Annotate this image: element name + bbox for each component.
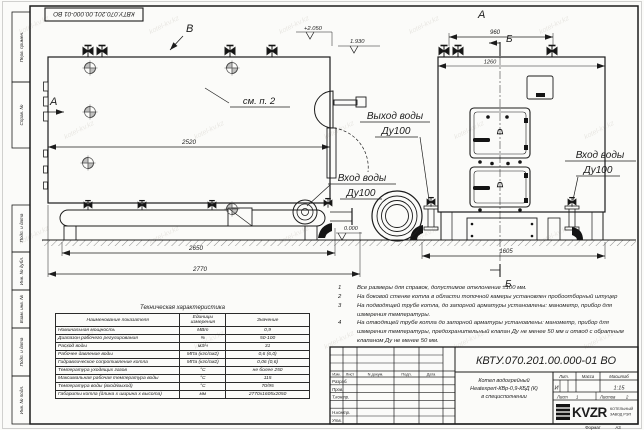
note-number: 3 — [338, 302, 357, 320]
note-number: 4 — [338, 319, 357, 346]
spec-header: Единицы измерения — [180, 314, 226, 327]
front-view-annotations: А 960 Б 1260 1605 Б Выход воды Д — [360, 9, 636, 290]
row-label-tkontr: Т.контр. — [332, 395, 349, 400]
spec-value: 70/95 — [226, 383, 310, 391]
row-label-razrab: Разраб. — [332, 379, 348, 384]
valve-icon — [97, 46, 107, 58]
sheet-value: 1 — [576, 395, 578, 400]
spec-table: Техническая характеристика Наименование … — [55, 305, 310, 399]
valve-icon — [83, 46, 93, 58]
spec-name: Гидравлическое сопротивление котла — [56, 359, 180, 367]
sheet-label: Лист — [556, 395, 568, 400]
margin-label: Подп. и дата — [19, 213, 24, 242]
valve-icon — [547, 46, 557, 58]
valve-icon — [568, 198, 576, 207]
valve-icon — [267, 46, 277, 58]
valve-icon — [427, 198, 435, 207]
position-mark-icon — [83, 105, 98, 120]
inlet-label-front: Вход воды — [576, 150, 625, 161]
spec-unit: °С — [180, 367, 226, 375]
spec-value: не более 250 — [226, 367, 310, 375]
spec-value: 0,6 (6,0) — [226, 351, 310, 359]
margin-label: Справ. № — [19, 105, 24, 126]
spec-unit: МПа (кгс/см2) — [180, 351, 226, 359]
spec-header: Значение — [226, 314, 310, 327]
inlet-label-dn: Ду100 — [346, 188, 376, 199]
note-item: 2 На боковой стенке котла в области топо… — [338, 293, 638, 302]
inlet-label: Вход воды — [338, 173, 387, 184]
lit-header: Лит. — [558, 374, 569, 379]
spec-name: Габариты котла (длина х ширина х высота) — [56, 391, 180, 399]
boiler-front-view — [372, 46, 605, 263]
sheets-value: 2 — [625, 395, 629, 400]
spec-name: Температура воды (вход/выход) — [56, 383, 180, 391]
spec-name: Диапазон рабочего регулирования — [56, 335, 180, 343]
spec-value: 0,06 (0,6) — [226, 359, 310, 367]
sheets-label: Листов — [599, 395, 616, 400]
spec-unit: м3/ч — [180, 343, 226, 351]
top-stamp-number: КВТУ.070.201.00.000-01 ВО — [53, 10, 134, 17]
table-row: Гидравлическое сопротивление котлаМПа (к… — [56, 359, 310, 367]
spec-header: Наименование показателя — [56, 314, 180, 327]
doc-number: КВТУ.070.201.00.000-01 ВО — [476, 355, 617, 367]
margin-stamps: Перв. примен. Справ. № Подп. и дата Инв.… — [12, 12, 30, 424]
side-view-annotations: В А см. п. 2 2520 2650 2770 +2.050 — [47, 23, 396, 277]
note-number: 2 — [338, 293, 357, 302]
margin-label: Взам. инв. № — [19, 295, 24, 323]
spec-unit: МВт — [180, 327, 226, 335]
position-mark-icon — [225, 61, 240, 76]
table-row: Диапазон рабочего регулирования%50-100 — [56, 335, 310, 343]
margin-label: Инв. № подл. — [19, 386, 24, 415]
elev-2050: +2.050 — [304, 26, 323, 32]
spec-value: 50-100 — [226, 335, 310, 343]
valve-icon — [84, 201, 92, 210]
spec-name: Номинальная мощность — [56, 327, 180, 335]
dim-2770: 2770 — [192, 266, 208, 273]
spec-name: Максимальная рабочая температура воды — [56, 375, 180, 383]
spec-value: 31 — [226, 343, 310, 351]
section-label-b-top: Б — [506, 34, 513, 45]
dim-2520: 2520 — [181, 139, 197, 146]
note-text: На отводящей трубе котла до запорной арм… — [357, 319, 638, 346]
spec-unit: мм — [180, 391, 226, 399]
spec-value: 2770х1605х2050 — [226, 391, 310, 399]
valve-icon — [138, 201, 146, 210]
dim-1605: 1605 — [499, 249, 513, 255]
spec-header-row: Наименование показателя Единицы измерени… — [56, 314, 310, 327]
margin-label: Перв. примен. — [19, 32, 24, 63]
table-row: Номинальная мощностьМВт0,9 — [56, 327, 310, 335]
elev-0000: 0.000 — [344, 226, 359, 232]
table-row: Габариты котла (длина х ширина х высота)… — [56, 391, 310, 399]
spec-name: Температура уходящих газов — [56, 367, 180, 375]
scale-value: 1:15 — [614, 386, 626, 392]
format-value: А3 — [615, 425, 621, 430]
spec-unit: °С — [180, 375, 226, 383]
spec-value: 0,9 — [226, 327, 310, 335]
logo-text: KVZR — [572, 405, 608, 420]
elev-1930: 1.930 — [350, 39, 365, 45]
position-mark-icon — [81, 156, 96, 171]
table-row: Рабочее давление водыМПа (кгс/см2)0,6 (6… — [56, 351, 310, 359]
dim-960: 960 — [490, 30, 501, 36]
header-col-izm: Изм. — [332, 372, 340, 377]
top-corner-stamp: КВТУ.070.201.00.000-01 ВО — [45, 8, 143, 21]
spec-unit: % — [180, 335, 226, 343]
note-item: 4 На отводящей трубе котла до запорной а… — [338, 319, 638, 346]
product-name-1: Котел водогрейный — [478, 377, 529, 384]
row-label-nkontr: Н.контр. — [332, 410, 350, 415]
row-label-utv: Утв. — [332, 418, 342, 423]
spec-value: 115 — [226, 375, 310, 383]
ground-line — [42, 240, 636, 246]
table-row: Температура воды (вход/выход)°С70/95 — [56, 383, 310, 391]
table-row: Расход водым3/ч31 — [56, 343, 310, 351]
logo-sub2: ЗАВОД РЭП — [610, 413, 631, 417]
title-block: КВТУ.070.201.00.000-01 ВО Котел водогрей… — [330, 347, 638, 430]
valve-icon — [225, 46, 235, 58]
spec-unit: МПа (кгс/см2) — [180, 359, 226, 367]
dim-1260: 1260 — [484, 60, 497, 66]
spec-name: Расход воды — [56, 343, 180, 351]
note-item: 3 На подводящей трубе котла, до запорной… — [338, 302, 638, 320]
note-item: 1 Все размеры для справок, допустимое от… — [338, 284, 638, 293]
margin-label: Подп. и дата — [19, 337, 24, 366]
drawing-sheet: kotel-kv.kzkotel-kv.kzkotel-kv.kzkotel-k… — [0, 0, 644, 430]
outlet-label: Выход воды — [367, 111, 424, 122]
valve-icon — [324, 199, 332, 208]
header-col-data: Дата — [427, 372, 436, 377]
note-text: На подводящей трубе котла, до запорной а… — [357, 302, 638, 320]
spec-table-title: Техническая характеристика — [55, 305, 310, 311]
note-number: 1 — [338, 284, 357, 293]
format-label: Формат — [585, 425, 601, 430]
spec-name: Рабочее давление воды — [56, 351, 180, 359]
spec-unit: °С — [180, 383, 226, 391]
boiler-side-view — [44, 46, 369, 241]
lit-value: И — [554, 386, 558, 392]
dim-2650: 2650 — [188, 245, 204, 252]
notes-list: 1 Все размеры для справок, допустимое от… — [338, 284, 638, 346]
kvzr-logo: KVZR КОТЕЛЬНЫЙ ЗАВОД РЭП — [556, 404, 633, 420]
header-col-list: Лист — [346, 372, 355, 377]
product-name-3: в специсполнении — [481, 394, 527, 400]
see-note-label: см. п. 2 — [243, 96, 276, 107]
pipe-elbow — [572, 227, 583, 240]
header-col-podp: Подп. — [401, 372, 411, 377]
view-label-v: В — [186, 23, 193, 35]
position-mark-icon — [83, 61, 98, 76]
mass-header: Масса — [582, 374, 595, 379]
note-text: На боковой стенке котла в области топочн… — [357, 293, 638, 302]
note-text: Все размеры для справок, допустимое откл… — [357, 284, 638, 293]
door-swing-arc — [334, 128, 368, 172]
logo-sub1: КОТЕЛЬНЫЙ — [610, 407, 633, 411]
table-row: Максимальная рабочая температура воды°С1… — [56, 375, 310, 383]
table-row: Температура уходящих газов°Сне более 250 — [56, 367, 310, 375]
scale-header: Масштаб — [609, 374, 629, 379]
valve-icon — [208, 201, 216, 210]
product-name-2: Heatexpert-КВр-0,9-КБД (К) — [470, 386, 538, 392]
section-label-a: А — [49, 96, 57, 108]
valve-icon — [439, 46, 449, 58]
row-label-prov: Пров. — [332, 387, 343, 392]
margin-label: Инв. № дубл. — [19, 257, 24, 285]
outlet-label-dn: Ду100 — [381, 126, 411, 137]
header-col-docnum: N докум. — [368, 372, 384, 377]
view-label-a: А — [477, 9, 485, 21]
inlet-label-front-dn: Ду100 — [583, 165, 613, 176]
valve-icon — [453, 46, 463, 58]
